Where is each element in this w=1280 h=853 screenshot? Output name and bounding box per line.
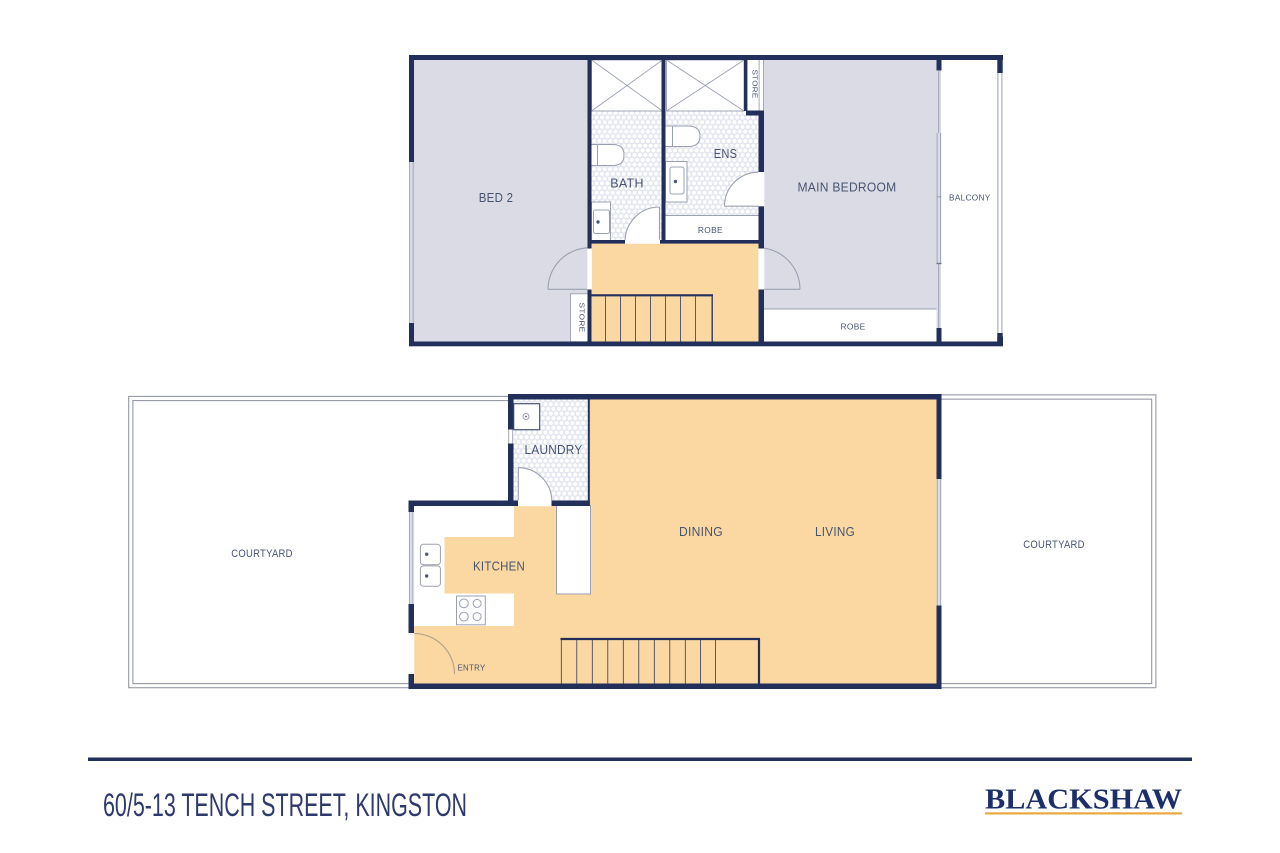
svg-text:COURTYARD: COURTYARD: [231, 548, 293, 560]
svg-text:BATH: BATH: [610, 176, 644, 191]
svg-text:LIVING: LIVING: [815, 524, 855, 539]
svg-text:MAIN BEDROOM: MAIN BEDROOM: [798, 180, 897, 195]
svg-text:60/5-13 TENCH STREET, KINGSTON: 60/5-13 TENCH STREET, KINGSTON: [103, 787, 467, 823]
svg-text:KITCHEN: KITCHEN: [473, 559, 525, 574]
svg-text:BALCONY: BALCONY: [949, 194, 991, 203]
svg-text:BLACKSHAW: BLACKSHAW: [985, 784, 1182, 816]
svg-text:STORE: STORE: [751, 70, 760, 99]
svg-text:COURTYARD: COURTYARD: [1023, 539, 1085, 551]
svg-text:BED 2: BED 2: [479, 190, 514, 205]
svg-text:LAUNDRY: LAUNDRY: [525, 442, 583, 457]
svg-text:ENTRY: ENTRY: [458, 664, 486, 673]
svg-text:STORE: STORE: [578, 303, 587, 333]
svg-text:DINING: DINING: [679, 524, 723, 539]
svg-text:ROBE: ROBE: [698, 226, 723, 235]
svg-text:ENS: ENS: [714, 146, 738, 161]
svg-text:ROBE: ROBE: [841, 323, 866, 332]
